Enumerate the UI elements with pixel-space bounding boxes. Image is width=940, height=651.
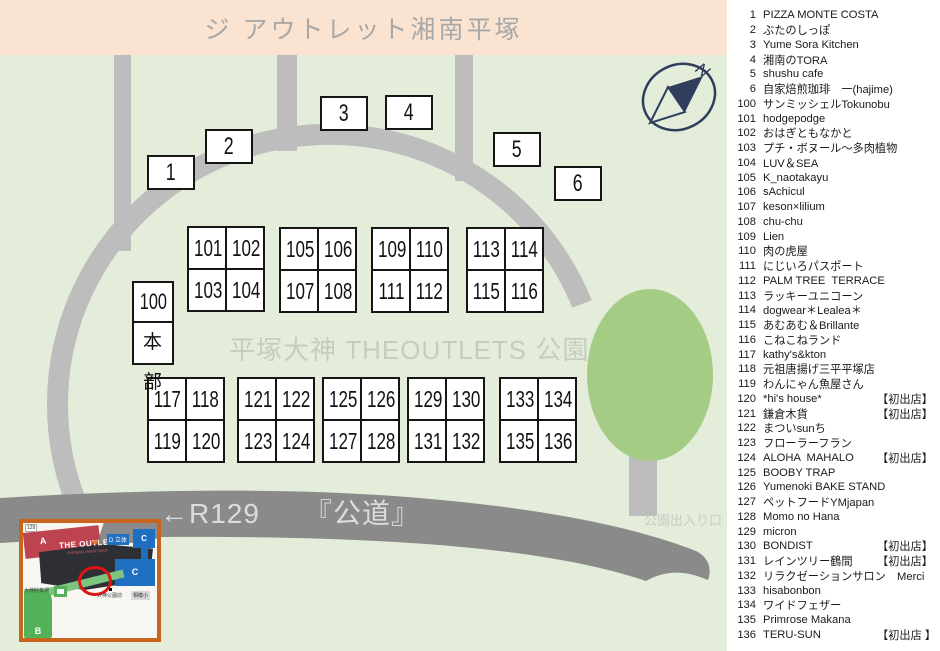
legend-row-name: shushu cafe	[763, 68, 823, 80]
booth-108: 108	[319, 271, 355, 311]
legend-row-name: リラクゼーションサロン Merci	[763, 568, 924, 584]
legend-row-number: 132	[727, 570, 756, 582]
booth-119: 119	[149, 421, 185, 461]
legend-row-name: keson×lilium	[763, 201, 825, 213]
booth-113: 113	[468, 229, 504, 269]
inset-zone-b: B	[24, 589, 52, 638]
legend-row-107: 107keson×lilium	[727, 200, 940, 215]
booth-104: 104	[227, 270, 263, 310]
legend-row-114: 114dogwear＊Lealea＊	[727, 303, 940, 318]
park-name-label: 平塚大神 THEOUTLETS 公園	[229, 330, 589, 367]
legend-row-124: 124ALOHA MAHALO【初出店】	[727, 451, 940, 466]
booth-107: 107	[281, 271, 317, 311]
legend-row-number: 6	[727, 83, 756, 95]
legend-row-number: 5	[727, 68, 756, 80]
legend-row-number: 100	[727, 98, 756, 110]
legend-row-number: 119	[727, 378, 756, 390]
legend-row-name: 自家焙煎珈琲 一(hajime)	[763, 81, 893, 97]
booth-grid-125: 125126127128	[322, 377, 400, 463]
booth-101: 101	[189, 228, 225, 268]
legend-row-name: K_naotakayu	[763, 172, 828, 184]
legend-row-number: 117	[727, 349, 756, 361]
hq-booth-number: 100	[132, 281, 174, 323]
legend-row-number: 113	[727, 290, 756, 302]
legend-row-number: 111	[727, 260, 756, 272]
legend-row-name: レインツリー鶴間	[763, 553, 853, 569]
booth-4: 4	[385, 95, 433, 130]
r129-road-label: ←R129 『公道』	[160, 492, 420, 532]
legend-row-5: 5shushu cafe	[727, 67, 940, 82]
legend-row-name: hodgepodge	[763, 113, 825, 125]
inset-park-marker	[109, 588, 112, 591]
legend-row-name: sAchicul	[763, 186, 805, 198]
legend-row-name: こねこねランド	[763, 332, 841, 348]
legend-row-name: あむあむ＆Brillante	[763, 317, 859, 333]
legend-row-105: 105K_naotakayu	[727, 170, 940, 185]
legend-row-name: PALM TREE TERRACE	[763, 275, 885, 287]
legend-row-name: chu-chu	[763, 216, 803, 228]
legend-row-name: プチ・ボヌール～多肉植物	[763, 140, 897, 156]
legend-row-110: 110肉の虎屋	[727, 244, 940, 259]
legend-row-134: 134ワイドフェザー	[727, 598, 940, 613]
booth-134: 134	[539, 379, 575, 419]
legend-row-number: 103	[727, 142, 756, 154]
legend-row-number: 121	[727, 408, 756, 420]
booth-125: 125	[324, 379, 360, 419]
inset-overview-map: A THE OUTLETS SHONAN HIRATSUKA D 立体 C C …	[19, 519, 161, 642]
booth-1: 1	[147, 155, 195, 190]
legend-row-number: 118	[727, 363, 756, 375]
legend-row-number: 129	[727, 526, 756, 538]
legend-row-number: 101	[727, 113, 756, 125]
legend-row-116: 116こねこねランド	[727, 333, 940, 348]
legend-row-number: 105	[727, 172, 756, 184]
booth-105: 105	[281, 229, 317, 269]
legend-row-name: Primrose Makana	[763, 614, 851, 626]
legend-row-number: 127	[727, 496, 756, 508]
legend-row-102: 102おはぎともなかと	[727, 126, 940, 141]
legend-row-106: 106sAchicul	[727, 185, 940, 200]
title-banner: ジ アウトレット湘南平塚	[0, 0, 727, 55]
legend-row-name: Lien	[763, 231, 784, 243]
legend-row-119: 119わんにゃん魚屋さん	[727, 377, 940, 392]
hq-booth-label: 本部	[132, 321, 174, 365]
legend-row-129: 129micron	[727, 524, 940, 539]
first-time-badge: 【初出店 】	[877, 627, 936, 643]
booth-grid-133: 133134135136	[499, 377, 577, 463]
legend-row-name: わんにゃん魚屋さん	[763, 376, 864, 392]
legend-row-104: 104LUV＆SEA	[727, 156, 940, 171]
legend-row-135: 135Primrose Makana	[727, 613, 940, 628]
legend-row-4: 4湘南のTORA	[727, 52, 940, 67]
booth-120: 120	[187, 421, 223, 461]
booth-grid-121: 121122123124	[237, 377, 315, 463]
booth-grid-129: 129130131132	[407, 377, 485, 463]
legend-row-number: 2	[727, 24, 756, 36]
booth-123: 123	[239, 421, 275, 461]
booth-127: 127	[324, 421, 360, 461]
legend-row-number: 122	[727, 422, 756, 434]
legend-row-name: hisabonbon	[763, 585, 821, 597]
legend-row-120: 120*hi's house*【初出店】	[727, 392, 940, 407]
legend-row-name: PIZZA MONTE COSTA	[763, 9, 878, 21]
inset-school-label: 相模小	[131, 591, 150, 600]
legend-row-130: 130BONDIST【初出店】	[727, 539, 940, 554]
legend-row-name: BOOBY TRAP	[763, 467, 835, 479]
legend-row-name: micron	[763, 526, 797, 538]
booth-3: 3	[320, 96, 368, 131]
booth-grid-105: 105106107108	[279, 227, 357, 313]
inset-zone-d: D 立体	[107, 534, 129, 545]
park-exit-label: 公園出入り口	[644, 510, 722, 529]
first-time-badge: 【初出店】	[877, 538, 933, 554]
legend-row-name: ラッキーユニコーン	[763, 288, 863, 304]
booth-118: 118	[187, 379, 223, 419]
first-time-badge: 【初出店】	[877, 406, 933, 422]
legend-row-123: 123フローラーフラン	[727, 436, 940, 451]
legend-row-name: dogwear＊Lealea＊	[763, 302, 862, 318]
legend-row-number: 104	[727, 157, 756, 169]
legend-row-number: 136	[727, 629, 756, 641]
legend-row-number: 133	[727, 585, 756, 597]
booth-grid-101: 101102103104	[187, 226, 265, 312]
booth-131: 131	[409, 421, 445, 461]
legend-row-name: 湘南のTORA	[763, 52, 827, 68]
legend-row-100: 100サンミッシェルTokunobu	[727, 97, 940, 112]
hq-booth: 100 本部	[132, 281, 174, 365]
legend-row-125: 125BOOBY TRAP	[727, 465, 940, 480]
legend-row-name: Yumenoki BAKE STAND	[763, 481, 885, 493]
legend-row-128: 128Momo no Hana	[727, 510, 940, 525]
legend-row-number: 124	[727, 452, 756, 464]
legend-row-number: 112	[727, 275, 756, 287]
route-129-shield: 129	[25, 524, 37, 532]
legend-row-name: Momo no Hana	[763, 511, 840, 523]
booth-130: 130	[447, 379, 483, 419]
legend-row-number: 120	[727, 393, 756, 405]
legend-row-122: 122まついsunち	[727, 421, 940, 436]
legend-row-name: LUV＆SEA	[763, 155, 818, 171]
legend-row-name: 肉の虎屋	[763, 243, 808, 259]
booth-2: 2	[205, 129, 253, 164]
legend-list: 1PIZZA MONTE COSTA2ぶたのしっぽ3Yume Sora Kitc…	[727, 0, 940, 642]
inset-zone-c-connector	[141, 548, 148, 559]
booth-grid-113: 113114115116	[466, 227, 544, 313]
legend-row-number: 4	[727, 54, 756, 66]
legend-row-112: 112PALM TREE TERRACE	[727, 274, 940, 289]
legend-row-number: 126	[727, 481, 756, 493]
legend-row-name: ALOHA MAHALO	[763, 452, 854, 464]
booth-109: 109	[373, 229, 409, 269]
booth-115: 115	[468, 271, 504, 311]
booth-grid-109: 109110111112	[371, 227, 449, 313]
booth-129: 129	[409, 379, 445, 419]
booth-128: 128	[362, 421, 398, 461]
legend-row-127: 127ペットフードYMjapan	[727, 495, 940, 510]
legend-row-number: 108	[727, 216, 756, 228]
inset-zone-c1: C	[133, 529, 155, 548]
booth-103: 103	[189, 270, 225, 310]
legend-row-name: サンミッシェルTokunobu	[763, 96, 890, 112]
legend-row-number: 135	[727, 614, 756, 626]
legend-row-number: 107	[727, 201, 756, 213]
legend-row-6: 6自家焙煎珈琲 一(hajime)	[727, 82, 940, 97]
legend-row-111: 111にじいろパスポート	[727, 259, 940, 274]
legend-row-name: ペットフードYMjapan	[763, 494, 874, 510]
legend-row-name: 鎌倉木貨	[763, 406, 808, 422]
legend-row-name: にじいろパスポート	[763, 258, 864, 274]
legend-row-115: 115あむあむ＆Brillante	[727, 318, 940, 333]
booth-110: 110	[411, 229, 447, 269]
legend-row-number: 102	[727, 127, 756, 139]
legend-row-number: 123	[727, 437, 756, 449]
legend-row-108: 108chu-chu	[727, 215, 940, 230]
booth-132: 132	[447, 421, 483, 461]
booth-102: 102	[227, 228, 263, 268]
legend-row-117: 117kathy's&kton	[727, 347, 940, 362]
booth-133: 133	[501, 379, 537, 419]
legend-row-2: 2ぶたのしっぽ	[727, 23, 940, 38]
legend-row-101: 101hodgepodge	[727, 111, 940, 126]
first-time-badge: 【初出店】	[877, 450, 933, 466]
event-map-flyer: N ジ アウトレット湘南平塚 平塚大神 THEOUTLETS 公園 ←R129 …	[0, 0, 940, 651]
legend-row-name: ぶたのしっぽ	[763, 22, 830, 38]
legend-row-number: 3	[727, 39, 756, 51]
legend-row-number: 106	[727, 186, 756, 198]
booth-135: 135	[501, 421, 537, 461]
booth-106: 106	[319, 229, 355, 269]
booth-121: 121	[239, 379, 275, 419]
legend-row-126: 126Yumenoki BAKE STAND	[727, 480, 940, 495]
legend-row-103: 103プチ・ボヌール～多肉植物	[727, 141, 940, 156]
booth-6: 6	[554, 166, 602, 201]
legend-row-name: フローラーフラン	[763, 435, 852, 451]
legend-row-name: Yume Sora Kitchen	[763, 39, 859, 51]
legend-row-name: TERU-SUN	[763, 629, 821, 641]
park-lawn-ellipse	[587, 289, 713, 461]
legend-row-name: ワイドフェザー	[763, 597, 841, 613]
legend-row-109: 109Lien	[727, 229, 940, 244]
legend-row-133: 133hisabonbon	[727, 583, 940, 598]
legend-row-136: 136TERU-SUN【初出店 】	[727, 628, 940, 643]
booth-126: 126	[362, 379, 398, 419]
legend-row-name: 元祖唐揚げ三平平塚店	[763, 361, 875, 377]
legend-row-number: 125	[727, 467, 756, 479]
first-time-badge: 【初出店】	[877, 553, 933, 569]
legend-row-number: 109	[727, 231, 756, 243]
legend-row-number: 131	[727, 555, 756, 567]
legend-row-name: kathy's&kton	[763, 349, 826, 361]
legend-panel: 1PIZZA MONTE COSTA2ぶたのしっぽ3Yume Sora Kitc…	[727, 0, 940, 651]
legend-row-113: 113ラッキーユニコーン	[727, 288, 940, 303]
legend-row-name: おはぎともなかと	[763, 125, 853, 141]
legend-row-number: 115	[727, 319, 756, 331]
legend-row-118: 118元祖唐揚げ三平平塚店	[727, 362, 940, 377]
inset-parking-icon	[54, 586, 67, 597]
legend-row-name: *hi's house*	[763, 393, 822, 405]
legend-row-3: 3Yume Sora Kitchen	[727, 38, 940, 53]
booth-124: 124	[277, 421, 313, 461]
inset-logo-dot	[93, 540, 97, 544]
page-title: ジ アウトレット湘南平塚	[205, 10, 523, 46]
booth-136: 136	[539, 421, 575, 461]
legend-row-121: 121鎌倉木貨【初出店】	[727, 406, 940, 421]
booth-111: 111	[373, 271, 409, 311]
legend-row-1: 1PIZZA MONTE COSTA	[727, 8, 940, 23]
legend-row-number: 116	[727, 334, 756, 346]
map-pane: N ジ アウトレット湘南平塚 平塚大神 THEOUTLETS 公園 ←R129 …	[0, 0, 727, 651]
legend-row-131: 131レインツリー鶴間【初出店】	[727, 554, 940, 569]
legend-row-number: 114	[727, 304, 756, 316]
inset-park-label: 大神公園前	[97, 592, 122, 599]
legend-row-name: まついsunち	[763, 420, 826, 436]
booth-5: 5	[493, 132, 541, 167]
booth-114: 114	[506, 229, 542, 269]
legend-row-name: BONDIST	[763, 540, 813, 552]
booth-122: 122	[277, 379, 313, 419]
legend-row-number: 134	[727, 599, 756, 611]
inset-parking-label: 大神駐車場	[24, 587, 49, 594]
legend-row-number: 110	[727, 245, 756, 257]
legend-row-number: 128	[727, 511, 756, 523]
legend-row-132: 132リラクゼーションサロン Merci	[727, 569, 940, 584]
booth-112: 112	[411, 271, 447, 311]
first-time-badge: 【初出店】	[877, 391, 933, 407]
legend-row-number: 130	[727, 540, 756, 552]
legend-row-number: 1	[727, 9, 756, 21]
booth-116: 116	[506, 271, 542, 311]
